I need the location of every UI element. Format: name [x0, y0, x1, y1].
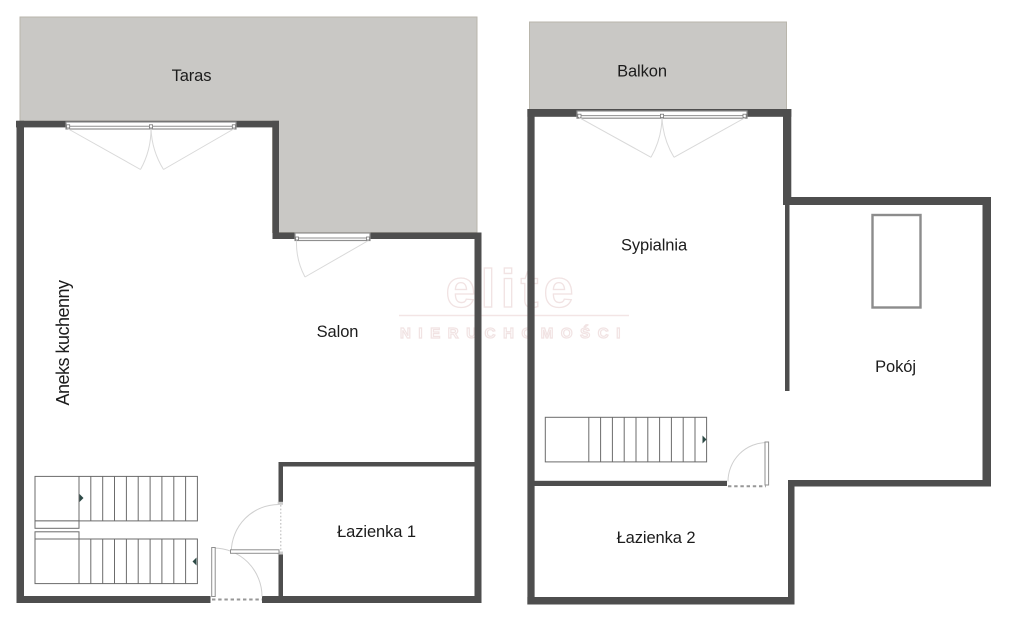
svg-text:Pokój: Pokój	[875, 358, 916, 376]
svg-text:Łazienka 1: Łazienka 1	[337, 523, 416, 541]
svg-text:Salon: Salon	[317, 323, 359, 341]
svg-text:elite: elite	[445, 259, 578, 319]
svg-text:Sypialnia: Sypialnia	[621, 237, 688, 255]
svg-text:NIERUCHOMOŚCI: NIERUCHOMOŚCI	[400, 324, 628, 342]
svg-text:Balkon: Balkon	[617, 63, 667, 81]
svg-text:Taras: Taras	[172, 67, 212, 85]
svg-text:Łazienka 2: Łazienka 2	[617, 529, 696, 547]
svg-text:Aneks kuchenny: Aneks kuchenny	[53, 280, 73, 406]
